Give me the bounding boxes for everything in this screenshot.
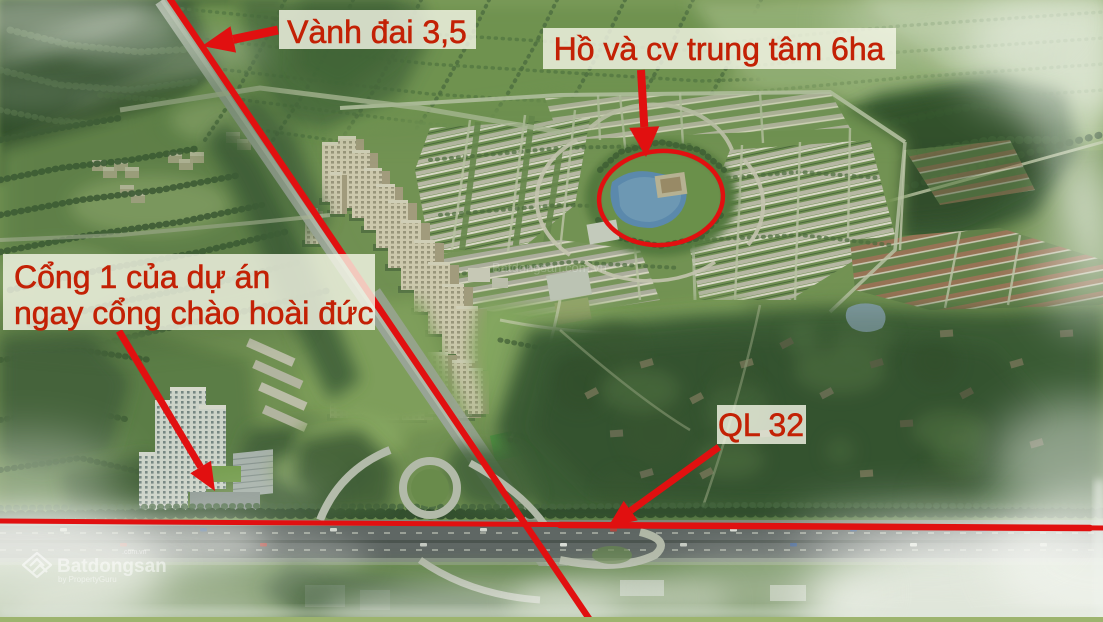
svg-text:Batdongsan.com.vn: Batdongsan.com.vn bbox=[492, 260, 607, 275]
svg-text:Hồ và cv trung tâm 6ha: Hồ và cv trung tâm 6ha bbox=[554, 31, 885, 67]
svg-text:QL 32: QL 32 bbox=[718, 407, 804, 443]
svg-text:Cổng 1 của dự án: Cổng 1 của dự án bbox=[14, 259, 270, 295]
svg-text:ngay cổng chào hoài đức: ngay cổng chào hoài đức bbox=[14, 295, 373, 331]
svg-text:Vành đai 3,5: Vành đai 3,5 bbox=[287, 14, 467, 50]
svg-text:Batdongsan: Batdongsan bbox=[57, 556, 167, 577]
svg-text:by PropertyGuru: by PropertyGuru bbox=[58, 575, 117, 584]
svg-text:.com.vn: .com.vn bbox=[122, 549, 147, 556]
